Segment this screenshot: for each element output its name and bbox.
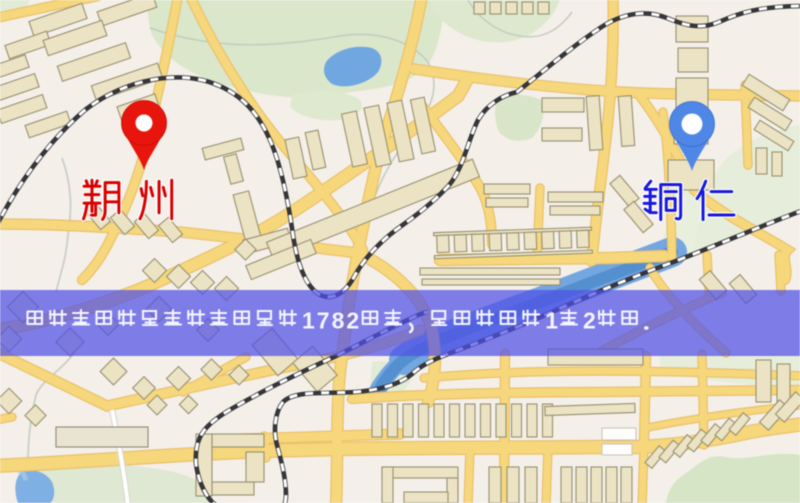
svg-text:1: 1 (545, 308, 558, 334)
svg-text:8: 8 (332, 308, 345, 334)
svg-text:1: 1 (302, 308, 315, 334)
svg-text:2: 2 (583, 308, 596, 334)
svg-text:7: 7 (317, 308, 330, 334)
svg-text:2: 2 (346, 308, 359, 334)
